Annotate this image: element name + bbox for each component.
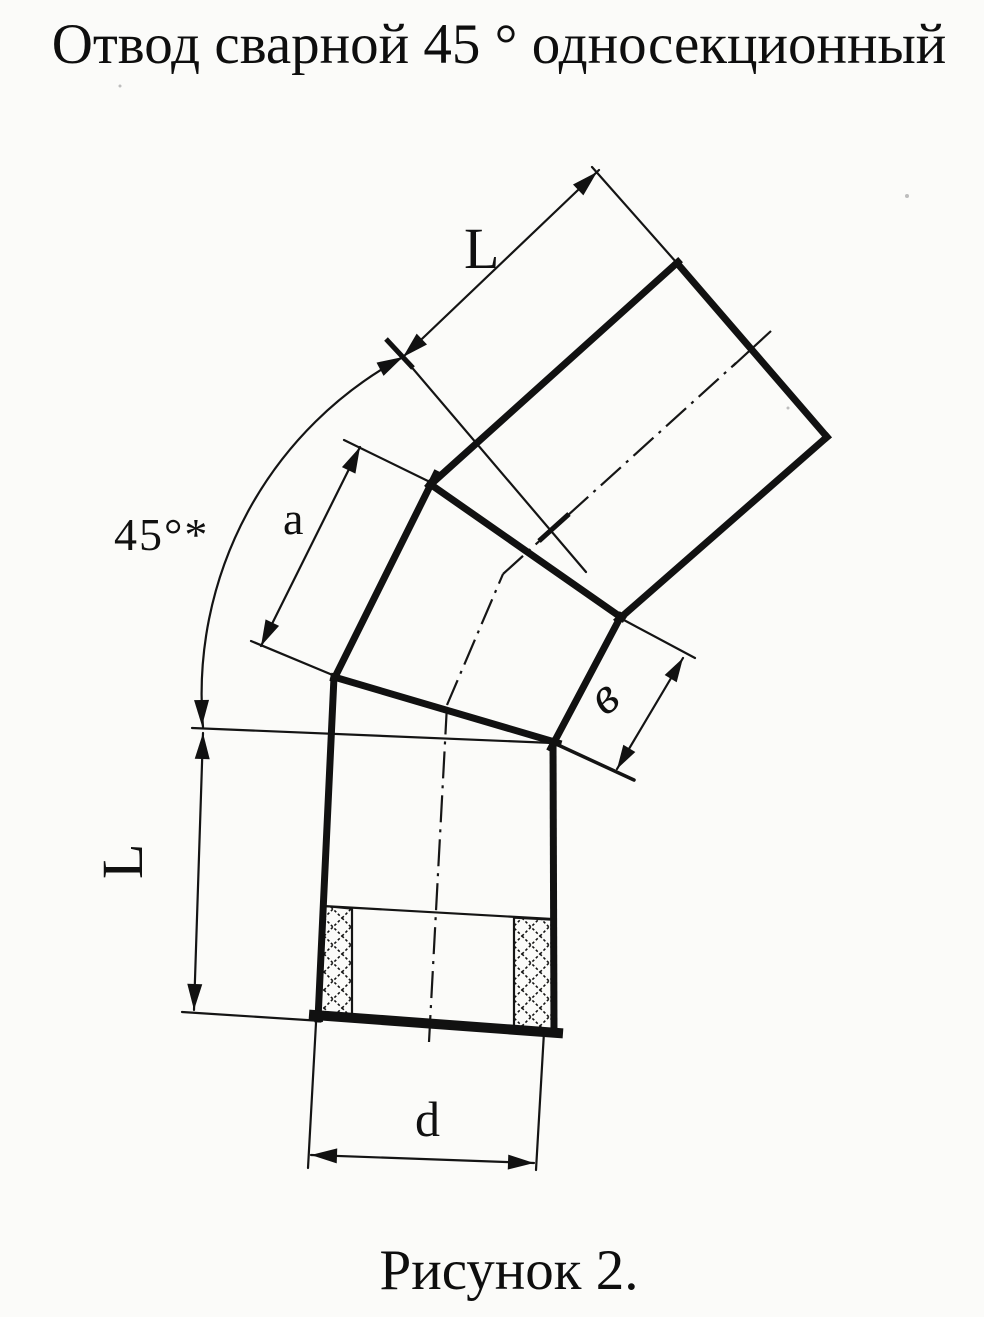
figure-caption: Рисунок 2. bbox=[0, 1238, 984, 1303]
a-extension-bottom bbox=[251, 641, 335, 676]
speck bbox=[905, 194, 909, 198]
arrow-v-top bbox=[665, 658, 683, 682]
label-section-edge-a: a bbox=[283, 493, 303, 544]
label-length-top: L bbox=[464, 216, 499, 281]
dim-a-line bbox=[261, 447, 360, 646]
arrow-arc-top bbox=[377, 357, 403, 376]
pipe-outline bbox=[314, 262, 827, 1033]
tick-weld-plane-lower bbox=[539, 514, 569, 541]
v-extension-top bbox=[622, 619, 695, 658]
arrow-a-bottom bbox=[261, 619, 279, 646]
horizontal-extension-line bbox=[192, 728, 553, 743]
weld-plane-extension-line bbox=[403, 357, 586, 572]
dim-L-top-line bbox=[403, 170, 599, 357]
dim-L-left-line bbox=[194, 733, 203, 1010]
arrow-Lleft-bottom bbox=[187, 984, 202, 1010]
label-diameter-d: d bbox=[415, 1091, 440, 1147]
arrow-arc-bottom bbox=[194, 700, 209, 726]
speck bbox=[787, 407, 790, 410]
bisector-centerline bbox=[447, 574, 503, 705]
end-face-extension-line bbox=[592, 167, 676, 262]
collar-top-line bbox=[323, 906, 552, 919]
dim-d-line bbox=[311, 1155, 534, 1163]
speck bbox=[119, 85, 122, 88]
arrow-d-left bbox=[311, 1148, 337, 1163]
arrow-v-bottom bbox=[617, 745, 635, 769]
arrow-a-top bbox=[342, 447, 360, 474]
middle-section-left-edge bbox=[334, 474, 436, 679]
label-angle-45: 45°* bbox=[114, 509, 209, 560]
upper-pipe-centerline bbox=[503, 363, 736, 574]
arrow-d-right bbox=[508, 1155, 534, 1170]
right-wall-hatch bbox=[514, 918, 555, 1032]
elbow-technical-drawing: L 45°* a в L d bbox=[0, 0, 984, 1317]
lower-pipe-right-edge bbox=[553, 741, 554, 1031]
vertical-pipe-centerline bbox=[429, 705, 447, 1042]
upper-pipe-bottom-face bbox=[618, 437, 827, 620]
scan-specks bbox=[119, 85, 910, 410]
label-end-width-v: в bbox=[577, 668, 630, 727]
label-length-left: L bbox=[90, 844, 155, 879]
d-extension-right bbox=[536, 1032, 544, 1170]
upper-pipe-end-face bbox=[677, 263, 827, 437]
arrow-Lleft-top bbox=[195, 733, 210, 759]
upper-weld-seam bbox=[430, 484, 622, 618]
d-extension-left bbox=[308, 1023, 316, 1168]
L-left-extension-bottom bbox=[182, 1012, 322, 1021]
